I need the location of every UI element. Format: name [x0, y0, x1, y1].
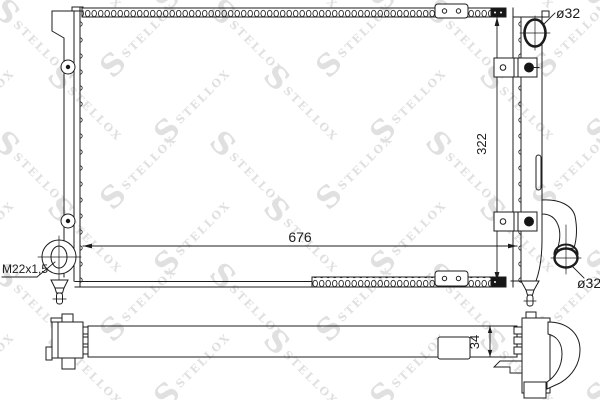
- clip-block-bottom-view: [438, 337, 470, 359]
- drain-valve-right: [521, 281, 539, 306]
- mount-boss-lower: [61, 214, 75, 228]
- hook-bracket: [494, 361, 522, 373]
- radiator-drawing: 676 322 34 M22x1,5 ø32 ø32: [0, 0, 600, 400]
- dim-height-label: 322: [474, 133, 489, 155]
- outlet-pipe-bottom-view: [547, 322, 580, 389]
- left-tank-bottom-view: [46, 314, 88, 369]
- technical-drawing-page: SSTELLOXSSTELLOXSSTELLOXSSTELLOXSSTELLOX…: [0, 0, 600, 400]
- outlet-diameter-label: ø32: [577, 275, 600, 291]
- side-bracket-lower: [494, 212, 537, 231]
- right-tank-bottom-view: [494, 312, 580, 398]
- dim-depth-label: 34: [467, 335, 482, 349]
- side-slot: [536, 155, 541, 190]
- drain-valve-left: [51, 280, 68, 304]
- side-bracket-upper: [494, 58, 539, 77]
- radiator-front-view: [2, 4, 584, 306]
- inlet-diameter-label: ø32: [556, 5, 580, 21]
- mount-boss-upper: [61, 60, 75, 74]
- dim-width-label: 676: [288, 229, 312, 245]
- thread-label: M22x1,5: [2, 262, 48, 276]
- bottom-clip-bracket: [435, 271, 468, 286]
- radiator-bottom-view: [46, 312, 580, 398]
- top-clip-bracket: [435, 4, 468, 18]
- outlet-stub-bottom-view: [524, 382, 546, 398]
- right-tank: [494, 11, 584, 306]
- inlet-port-group: [520, 13, 555, 50]
- dimension-height: [495, 17, 500, 281]
- outlet-pipe: [542, 200, 584, 278]
- left-tank: [38, 7, 83, 304]
- dimension-depth: [488, 326, 492, 357]
